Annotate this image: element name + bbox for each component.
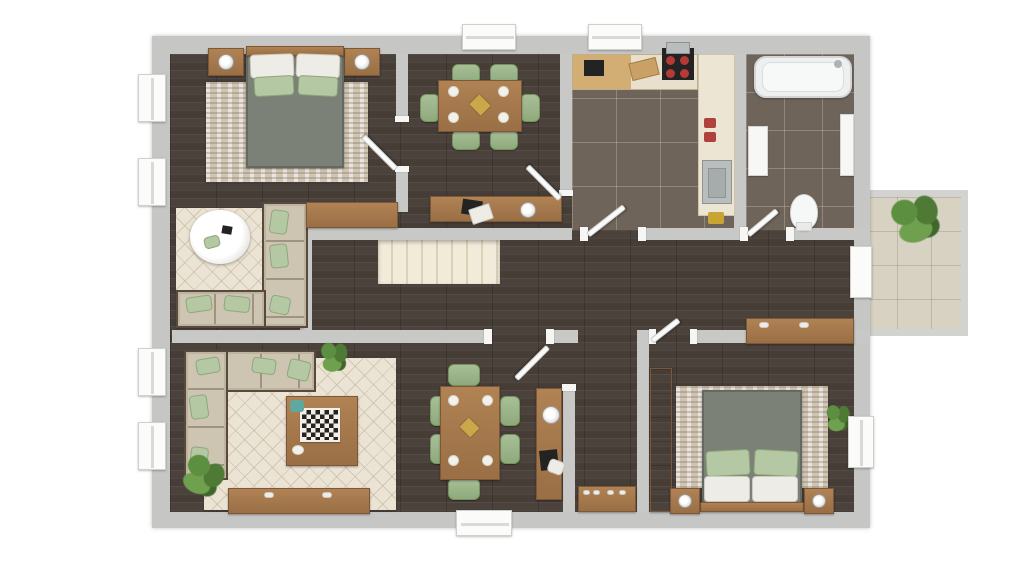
shoe <box>583 490 590 495</box>
door-frame <box>546 329 554 344</box>
pillow-green <box>705 449 750 477</box>
living-room <box>172 343 400 512</box>
shoe <box>593 490 600 495</box>
balcony-door <box>850 246 872 298</box>
window <box>138 348 166 396</box>
wall-bedroom1-dining-upper <box>396 54 408 122</box>
table-decor <box>221 225 232 235</box>
shoe <box>607 490 614 495</box>
lamp <box>218 54 234 70</box>
red-jar <box>704 132 716 142</box>
small-plate <box>292 445 304 455</box>
plate <box>448 86 459 97</box>
desk <box>430 196 562 222</box>
wardrobe <box>650 368 672 512</box>
sink-basin <box>708 168 726 198</box>
entrance-door <box>456 510 512 536</box>
pillow-white <box>704 476 750 502</box>
plate <box>498 112 509 123</box>
burner <box>666 56 675 65</box>
sideboard <box>306 202 398 228</box>
wall-dining-kitchen <box>560 54 572 196</box>
potted-plant <box>316 337 352 377</box>
wall-kitchen-bathroom <box>734 54 746 228</box>
round-coffee-table <box>190 210 250 264</box>
plate <box>498 86 509 97</box>
console-desk <box>536 388 562 500</box>
faucet <box>834 60 842 68</box>
window <box>138 422 166 470</box>
bedroom-1 <box>172 54 396 206</box>
burner <box>680 69 689 78</box>
pillow-green <box>268 294 291 316</box>
headboard <box>700 502 804 512</box>
plate <box>448 112 459 123</box>
desk-lamp <box>520 202 536 218</box>
red-jar <box>704 118 716 128</box>
sitting-area <box>172 200 402 335</box>
pillow-white <box>752 476 798 502</box>
door-frame <box>690 329 697 344</box>
door-frame <box>395 116 409 122</box>
toilet-tank <box>796 222 812 231</box>
dining-chair <box>452 130 480 150</box>
burner <box>680 56 689 65</box>
console-decor <box>264 492 274 498</box>
window <box>588 24 642 50</box>
pillow-green <box>268 209 289 235</box>
lamp <box>542 406 560 424</box>
lamp <box>812 494 826 508</box>
window <box>462 24 516 50</box>
dining-room <box>408 54 560 228</box>
shelf-decor <box>759 322 769 328</box>
dining-chair <box>448 364 480 386</box>
plate <box>448 455 459 466</box>
teal-decor <box>290 400 304 412</box>
bathtub-basin <box>762 62 844 92</box>
entry-corridor <box>575 343 637 512</box>
plate <box>482 455 493 466</box>
dining-chair <box>448 478 480 500</box>
plate <box>448 395 459 406</box>
pillow-green <box>251 356 277 375</box>
burner <box>666 69 675 78</box>
bathroom-shelf <box>840 114 854 176</box>
window <box>138 158 166 206</box>
dining-area-2 <box>408 343 568 512</box>
window <box>848 416 874 468</box>
pillow-green <box>753 449 798 477</box>
bathroom-cabinet <box>748 126 768 176</box>
kitchen-sink-black <box>584 60 604 76</box>
plate <box>482 395 493 406</box>
pot <box>666 42 690 54</box>
console-decor <box>322 492 332 498</box>
bedroom-2 <box>649 343 854 512</box>
dining-chair <box>490 130 518 150</box>
pillow-green <box>254 75 295 97</box>
checkerboard <box>300 408 340 442</box>
wall-pillar <box>637 330 649 343</box>
dining-chair <box>500 434 520 464</box>
door-frame <box>484 329 492 344</box>
pillow-green <box>223 295 251 314</box>
shelf-decor <box>799 322 809 328</box>
dining-chair <box>420 94 440 122</box>
tv-console <box>228 488 370 514</box>
window <box>138 74 166 122</box>
bathroom <box>746 54 854 230</box>
spacer <box>710 206 735 230</box>
shoe <box>619 490 626 495</box>
lamp <box>678 494 692 508</box>
pillow-green <box>269 243 289 269</box>
pillow-green <box>188 394 209 420</box>
dining-chair <box>520 94 540 122</box>
dining-chair <box>500 396 520 426</box>
pillow-green <box>298 75 339 97</box>
wall-corridor-right <box>637 343 649 512</box>
lamp <box>354 54 370 70</box>
kitchen <box>572 54 735 230</box>
floor-plan <box>0 0 1024 576</box>
